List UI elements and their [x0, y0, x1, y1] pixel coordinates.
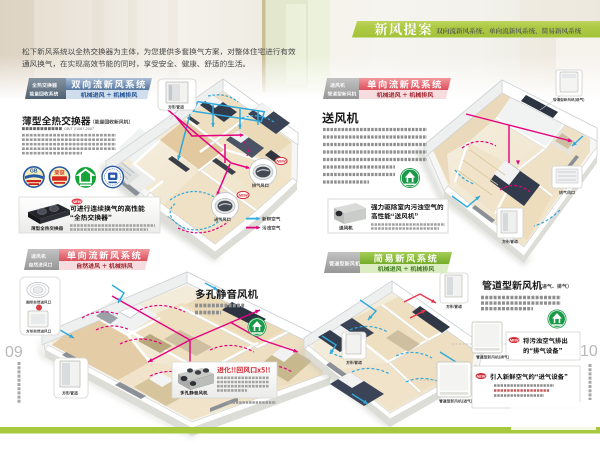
svg-text:GB: GB [30, 169, 38, 175]
svg-text:NEW: NEW [477, 375, 486, 379]
svg-text:10: 10 [580, 343, 598, 360]
svg-text:GB/T 21087-2007: GB/T 21087-2007 [64, 127, 94, 131]
svg-text:NEW: NEW [510, 339, 519, 343]
svg-text:NEW: NEW [73, 200, 82, 204]
svg-text:09: 09 [5, 344, 23, 361]
svg-text:NEW: NEW [276, 159, 287, 164]
svg-text:NEW: NEW [238, 193, 249, 198]
